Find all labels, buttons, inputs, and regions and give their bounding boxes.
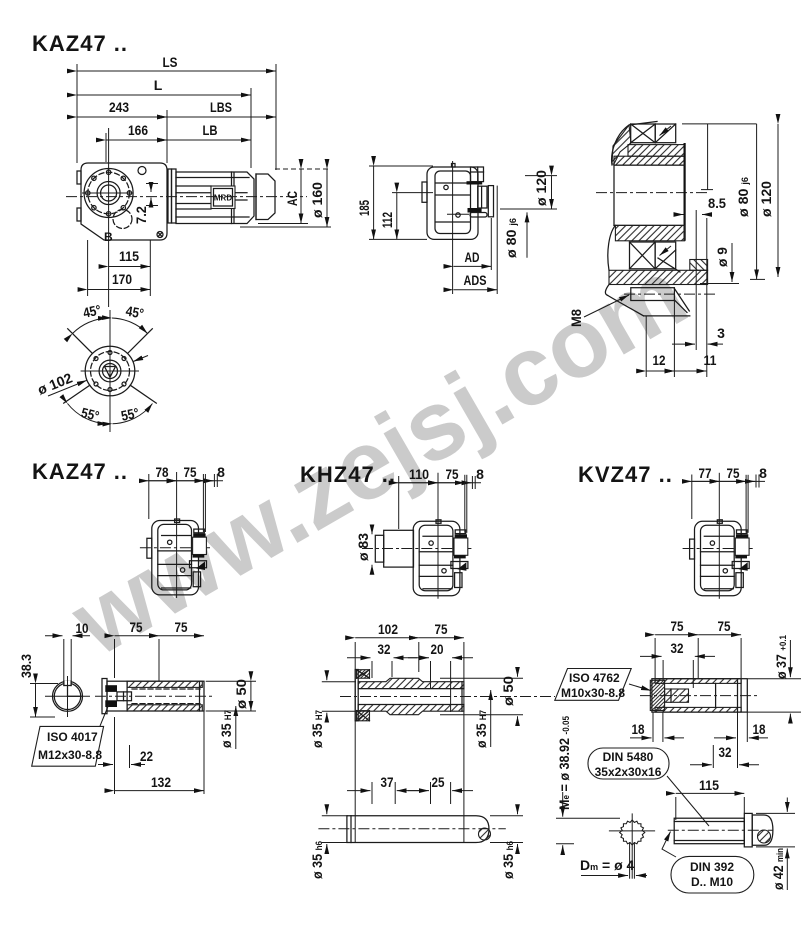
svg-text:ø 120: ø 120: [533, 170, 549, 206]
svg-text:D.. M10: D.. M10: [691, 875, 733, 889]
svg-text:20: 20: [431, 641, 444, 657]
svg-text:32: 32: [671, 640, 684, 656]
svg-text:110: 110: [409, 466, 429, 482]
svg-text:32: 32: [719, 744, 732, 760]
svg-text:75: 75: [446, 466, 459, 482]
svg-text:7.2: 7.2: [133, 206, 149, 224]
svg-text:32: 32: [378, 641, 391, 657]
svg-text:8: 8: [217, 464, 225, 480]
svg-text:AC: AC: [284, 191, 300, 206]
svg-text:ISO 4017: ISO 4017: [47, 730, 98, 744]
svg-text:35x2x30x16: 35x2x30x16: [595, 765, 662, 779]
svg-text:78: 78: [156, 464, 169, 480]
svg-text:8: 8: [759, 465, 767, 481]
svg-text:KAZ47 ..: KAZ47 ..: [32, 459, 128, 484]
svg-text:75: 75: [727, 465, 740, 481]
svg-text:11: 11: [704, 352, 717, 368]
svg-text:ø 83: ø 83: [355, 533, 371, 561]
svg-text:LS: LS: [163, 54, 178, 70]
svg-text:ø 80 j6: ø 80 j6: [735, 177, 751, 217]
svg-text:M10x30-8.8: M10x30-8.8: [561, 686, 625, 700]
svg-text:ø 9: ø 9: [714, 247, 730, 267]
svg-text:132: 132: [151, 774, 171, 790]
svg-text:38.3: 38.3: [18, 654, 34, 678]
svg-text:ø 35 h6: ø 35 h6: [309, 841, 325, 879]
svg-text:LB: LB: [203, 122, 218, 138]
svg-text:ADS: ADS: [464, 272, 487, 288]
svg-text:102: 102: [378, 621, 398, 637]
svg-text:Dm = ø 4: Dm = ø 4: [580, 857, 635, 873]
svg-text:KAZ47 ..: KAZ47 ..: [32, 31, 128, 56]
svg-text:ø 120: ø 120: [758, 181, 774, 217]
svg-text:166: 166: [128, 122, 148, 138]
svg-text:ISO 4762: ISO 4762: [569, 671, 620, 685]
svg-text:DIN 5480: DIN 5480: [603, 750, 654, 764]
svg-text:LBS: LBS: [210, 99, 232, 115]
svg-text:75: 75: [184, 464, 197, 480]
svg-text:ø 50: ø 50: [233, 679, 249, 709]
svg-text:37: 37: [381, 774, 394, 790]
svg-text:185: 185: [356, 200, 372, 216]
svg-text:www.zejsj.com: www.zejsj.com: [53, 237, 704, 676]
svg-text:ø 160: ø 160: [309, 182, 325, 218]
svg-text:243: 243: [109, 99, 129, 115]
svg-text:12: 12: [653, 352, 666, 368]
svg-text:3: 3: [717, 325, 725, 341]
svg-text:115: 115: [699, 777, 719, 793]
svg-text:75: 75: [130, 619, 143, 635]
svg-text:8: 8: [476, 466, 484, 482]
svg-text:AD: AD: [465, 249, 480, 265]
svg-text:ø 80 j6: ø 80 j6: [503, 218, 519, 258]
svg-text:B: B: [104, 230, 113, 244]
svg-text:77: 77: [699, 465, 712, 481]
svg-text:ø 35 H7: ø 35 H7: [218, 710, 234, 748]
svg-text:22: 22: [140, 748, 153, 764]
svg-text:115: 115: [119, 248, 139, 264]
svg-text:170: 170: [112, 271, 132, 287]
svg-text:8.5: 8.5: [708, 195, 726, 211]
svg-text:KVZ47 ..: KVZ47 ..: [578, 462, 673, 487]
svg-text:112: 112: [379, 212, 395, 228]
svg-text:55°: 55°: [80, 404, 101, 424]
svg-text:ø 42 min: ø 42 min: [770, 848, 786, 890]
svg-text:25: 25: [432, 774, 445, 790]
svg-text:10: 10: [76, 620, 89, 636]
svg-text:75: 75: [175, 619, 188, 635]
svg-text:L: L: [154, 77, 163, 93]
svg-text:KHZ47 ..: KHZ47 ..: [300, 462, 396, 487]
svg-text:75: 75: [718, 618, 731, 634]
svg-text:ø 35 H7: ø 35 H7: [309, 710, 325, 748]
svg-text:75: 75: [671, 618, 684, 634]
svg-text:ø 35 H7: ø 35 H7: [473, 710, 489, 748]
svg-text:45°: 45°: [125, 303, 146, 322]
svg-text:55°: 55°: [119, 404, 140, 423]
svg-text:MRD: MRD: [214, 194, 232, 203]
svg-text:ø 35 h6: ø 35 h6: [500, 841, 516, 879]
svg-text:M12x30-8.8: M12x30-8.8: [38, 748, 102, 762]
svg-text:ø 50: ø 50: [500, 676, 516, 706]
svg-text:Me = ø 38.92 -0.05: Me = ø 38.92 -0.05: [556, 716, 572, 810]
svg-text:75: 75: [435, 621, 448, 637]
svg-text:18: 18: [753, 721, 766, 737]
svg-text:DIN 392: DIN 392: [690, 860, 734, 874]
svg-text:M8: M8: [568, 309, 584, 327]
svg-text:18: 18: [632, 721, 645, 737]
svg-text:ø 37 +0.1: ø 37 +0.1: [773, 635, 789, 679]
svg-text:45°: 45°: [81, 301, 102, 320]
